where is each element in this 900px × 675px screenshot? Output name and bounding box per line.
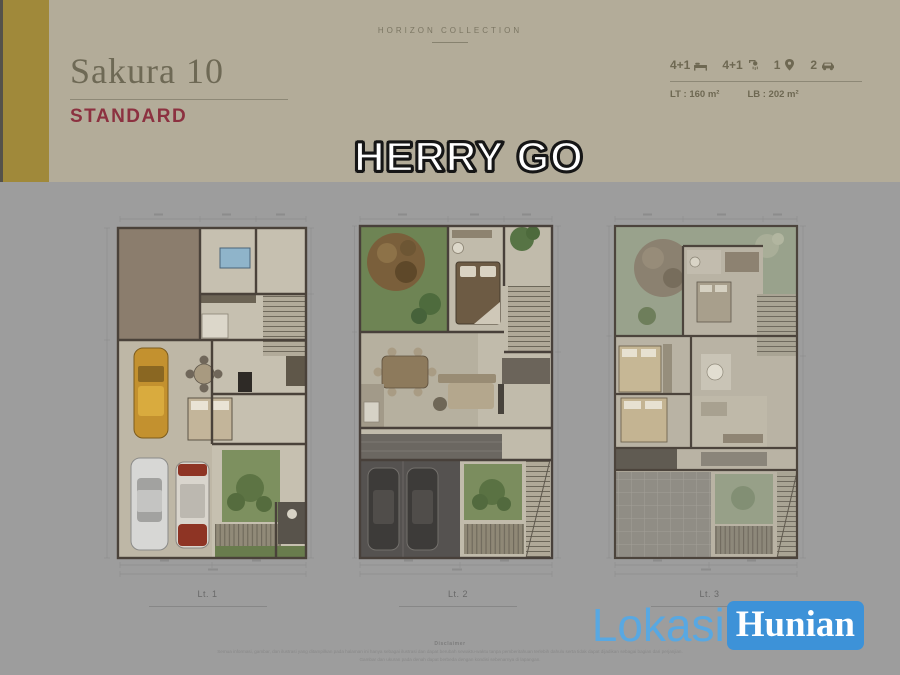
floorplan-lt3-drawing <box>605 206 814 583</box>
car-icon <box>821 60 835 71</box>
floorplan-label: Lt. 2 <box>352 589 564 599</box>
page-subtitle: STANDARD <box>70 106 288 128</box>
car-red <box>176 462 209 548</box>
land-area-label: LT : 160 m² <box>670 89 719 100</box>
brand-hunian-badge: Hunian <box>727 601 864 650</box>
floorplan-lt2: Lt. 2 <box>352 206 564 607</box>
disclaimer-line-2: Gambar dan ukuran pada denah dapat berbe… <box>80 657 820 663</box>
watermark-name: HERRY GO <box>338 133 600 181</box>
collection-label: HORIZON COLLECTION <box>250 26 650 35</box>
shower-icon <box>747 60 759 71</box>
spec-bathrooms-value: 4+1 <box>722 58 742 72</box>
spec-carport: 2 <box>810 58 835 72</box>
spec-bedrooms: 4+1 <box>670 58 707 72</box>
caption-rule <box>149 606 267 607</box>
spec-row: 4+1 4+1 <box>670 58 862 72</box>
building-area-label: LB : 202 m² <box>747 89 798 100</box>
gold-bar <box>3 0 49 182</box>
collection-dash <box>432 42 468 43</box>
floorplan-lt2-drawing <box>352 206 564 583</box>
floorplan-lt3: Lt. 3 <box>605 206 814 607</box>
spec-bathrooms: 4+1 <box>722 58 758 72</box>
page-title: Sakura 10 <box>70 50 288 92</box>
spec-bedrooms-value: 4+1 <box>670 58 690 72</box>
bed-icon <box>694 60 707 71</box>
brochure-frame: HORIZON COLLECTION Sakura 10 STANDARD 4+… <box>0 0 900 675</box>
bed-kids <box>621 398 667 442</box>
pin-icon <box>784 59 795 71</box>
brand-watermark: Lokasi Hunian <box>592 598 864 652</box>
title-block: Sakura 10 STANDARD <box>70 50 288 128</box>
spec-carport-value: 2 <box>810 58 817 72</box>
spec-prayer-room-value: 1 <box>774 58 781 72</box>
floorplan-label: Lt. 1 <box>100 589 315 599</box>
bed-master <box>456 262 500 324</box>
car-orange <box>134 348 168 438</box>
title-rule <box>70 99 288 100</box>
spec-divider <box>670 81 862 82</box>
brand-lokasi-text: Lokasi <box>592 598 725 652</box>
spec-block: 4+1 4+1 <box>670 58 862 100</box>
spec-prayer-room: 1 <box>774 58 796 72</box>
floorplan-lt1-drawing <box>100 206 315 583</box>
collection-block: HORIZON COLLECTION <box>250 26 650 43</box>
car-silver <box>131 458 168 550</box>
caption-rule <box>399 606 517 607</box>
area-row: LT : 160 m² LB : 202 m² <box>670 89 862 100</box>
floorplan-lt1: Lt. 1 <box>100 206 315 607</box>
bed-guest <box>619 346 661 392</box>
